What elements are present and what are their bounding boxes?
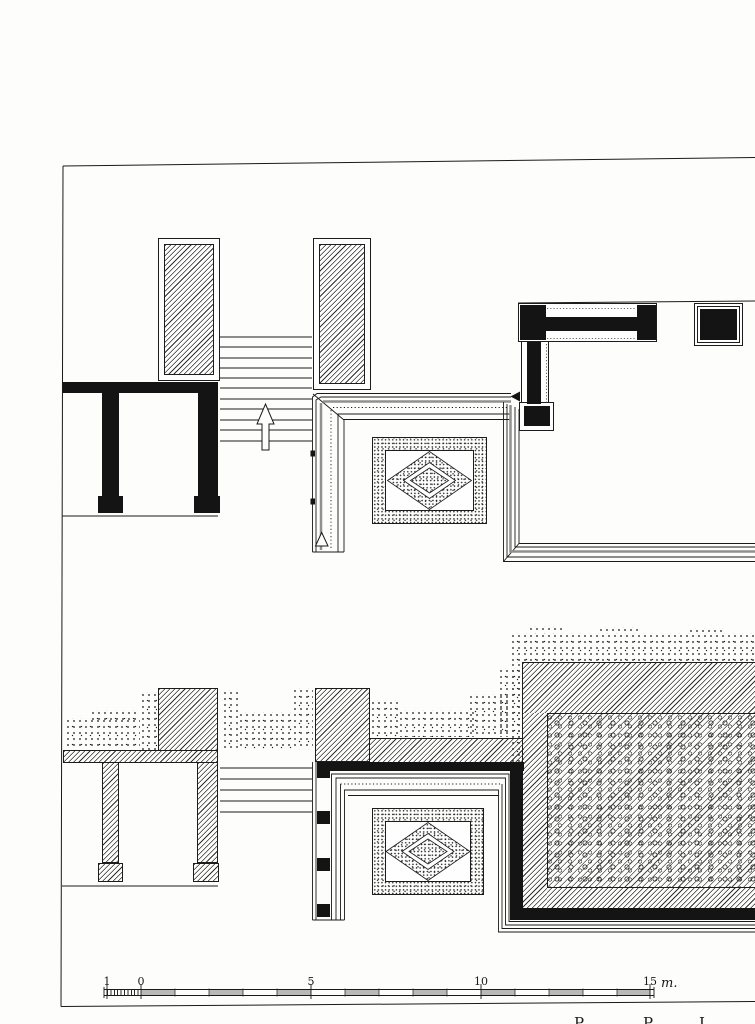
scale-label-10: 10 [474,976,488,987]
scale-bar [104,984,654,999]
room-top-line [518,301,755,303]
upper-room-wall-band [313,394,512,553]
scale-unit-label: m. [661,977,677,990]
wall-tick [311,451,316,457]
mosaic-upper-outlines [388,452,472,510]
lower-room-wall-band [313,762,755,932]
sheet-border [61,158,755,1007]
right-room-wall-band [504,402,755,562]
channel-arrow-west [511,392,521,402]
caption-fragment: P [574,1016,584,1024]
scale-label-0: 0 [138,976,145,987]
scale-label-15: 15 [643,976,657,987]
plan-linework [0,0,755,1024]
mosaic-lower-outlines [386,823,470,881]
caption-fragment: I [699,1016,705,1024]
scale-label-1: 1 [104,976,111,987]
ascent-arrow [257,404,274,450]
lower-staircase [220,768,312,812]
threshold-triangle-marker [316,533,329,547]
scale-label-5: 5 [308,976,315,987]
site-plan-sheet: 1 0 5 10 15 m. P P I [0,0,755,1024]
wall-tick [311,499,316,505]
opus-wall-plaster-edges [547,309,637,404]
caption-fragment: P [643,1016,653,1024]
